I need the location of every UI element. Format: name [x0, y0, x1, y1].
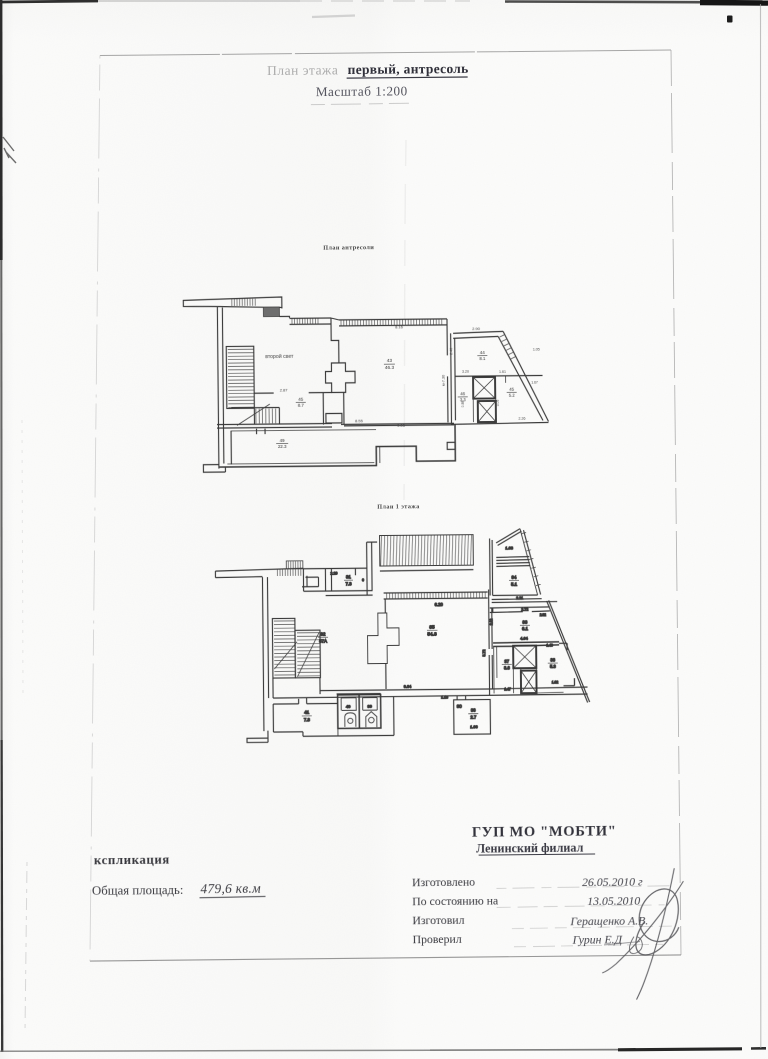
svg-text:46: 46	[460, 391, 465, 396]
svg-text:Общая площадь:: Общая площадь:	[92, 883, 184, 898]
svg-text:36: 36	[550, 657, 555, 662]
svg-text:13.05.2010: 13.05.2010	[587, 894, 640, 909]
svg-text:30: 30	[457, 704, 463, 709]
svg-text:Изготовлено: Изготовлено	[412, 875, 475, 890]
svg-text:9.34: 9.34	[404, 685, 411, 689]
svg-text:1.67: 1.67	[531, 381, 538, 385]
svg-text:8.55: 8.55	[355, 418, 364, 423]
svg-text:1.05: 1.05	[533, 347, 540, 351]
svg-text:1.61: 1.61	[499, 370, 506, 374]
svg-text:Ленинский филиал: Ленинский филиал	[476, 841, 584, 856]
svg-text:Гурин Е.Д: Гурин Е.Д	[571, 932, 623, 946]
svg-text:План этажа: План этажа	[267, 62, 338, 78]
svg-text:1.02: 1.02	[552, 680, 559, 684]
svg-text:6: 6	[362, 578, 364, 582]
svg-text:5.1: 5.1	[511, 582, 518, 587]
svg-text:Геращенко А.В.: Геращенко А.В.	[569, 913, 648, 928]
svg-text:2.02: 2.02	[540, 613, 546, 617]
svg-text:3.20: 3.20	[462, 370, 469, 374]
svg-text:6.1: 6.1	[522, 626, 529, 631]
svg-text:2.21: 2.21	[516, 596, 523, 600]
svg-text:8.16: 8.16	[395, 324, 404, 329]
svg-text:2.40: 2.40	[449, 348, 453, 355]
svg-text:ГУП МО "МОБТИ": ГУП МО "МОБТИ"	[472, 823, 617, 840]
svg-text:План антресоли: План антресоли	[323, 244, 374, 251]
svg-text:34: 34	[511, 575, 516, 580]
svg-text:7.3: 7.3	[345, 581, 352, 586]
svg-text:8.7: 8.7	[298, 403, 305, 408]
svg-text:38: 38	[471, 708, 476, 713]
svg-text:0.88: 0.88	[461, 401, 465, 408]
svg-text:22.3: 22.3	[278, 444, 287, 449]
svg-text:2.12: 2.12	[489, 619, 493, 626]
svg-text:5.72: 5.72	[482, 650, 486, 657]
svg-text:3.05: 3.05	[496, 399, 500, 406]
svg-text:1.63: 1.63	[505, 545, 514, 550]
svg-text:1.47: 1.47	[504, 687, 511, 691]
svg-text:кспликация: кспликация	[94, 853, 170, 868]
svg-text:32: 32	[321, 632, 326, 637]
svg-text:План 1 этажа: План 1 этажа	[377, 503, 419, 510]
svg-text:2.72: 2.72	[521, 608, 528, 612]
svg-text:33: 33	[522, 620, 527, 625]
svg-text:45: 45	[509, 387, 514, 392]
svg-text:57А: 57А	[319, 639, 327, 644]
svg-text:31: 31	[346, 574, 351, 579]
svg-text:Проверил: Проверил	[412, 932, 461, 946]
svg-text:первый, антресоль: первый, антресоль	[348, 61, 469, 77]
svg-text:46.3: 46.3	[385, 365, 395, 371]
svg-text:2.90: 2.90	[472, 326, 481, 331]
svg-text:37: 37	[504, 659, 509, 664]
svg-text:По состоянию на: По состоянию на	[412, 893, 499, 908]
svg-text:м-7.30: м-7.30	[442, 375, 446, 386]
svg-text:2.20: 2.20	[330, 572, 337, 576]
svg-text:26.05.2010 г: 26.05.2010 г	[582, 875, 643, 890]
svg-text:1.40: 1.40	[546, 643, 553, 647]
svg-text:2.26: 2.26	[518, 417, 525, 421]
svg-text:второй свет: второй свет	[265, 353, 294, 360]
svg-text:45: 45	[298, 397, 303, 402]
svg-text:4.04: 4.04	[520, 637, 527, 641]
svg-text:44: 44	[480, 350, 485, 355]
svg-text:Изготовил: Изготовил	[412, 913, 464, 928]
svg-text:6.20: 6.20	[435, 602, 444, 607]
svg-text:54.3: 54.3	[427, 631, 437, 637]
svg-text:3.6: 3.6	[504, 665, 511, 670]
svg-text:43: 43	[387, 358, 393, 364]
svg-text:1.18: 1.18	[441, 695, 448, 699]
svg-text:5.2: 5.2	[509, 393, 516, 398]
svg-text:Масштаб 1:200: Масштаб 1:200	[316, 83, 408, 99]
svg-text:7.3: 7.3	[304, 717, 311, 722]
svg-text:5.3: 5.3	[550, 664, 557, 669]
svg-text:49: 49	[280, 438, 285, 443]
svg-text:8.1: 8.1	[479, 356, 486, 361]
svg-text:479,6 кв.м: 479,6 кв.м	[200, 881, 261, 897]
svg-text:9.03: 9.03	[397, 423, 406, 428]
svg-text:1.36: 1.36	[470, 725, 477, 729]
svg-text:2.7: 2.7	[470, 714, 477, 719]
svg-text:2.87: 2.87	[280, 387, 289, 392]
svg-text:41: 41	[304, 710, 309, 715]
svg-text:35: 35	[429, 625, 435, 631]
